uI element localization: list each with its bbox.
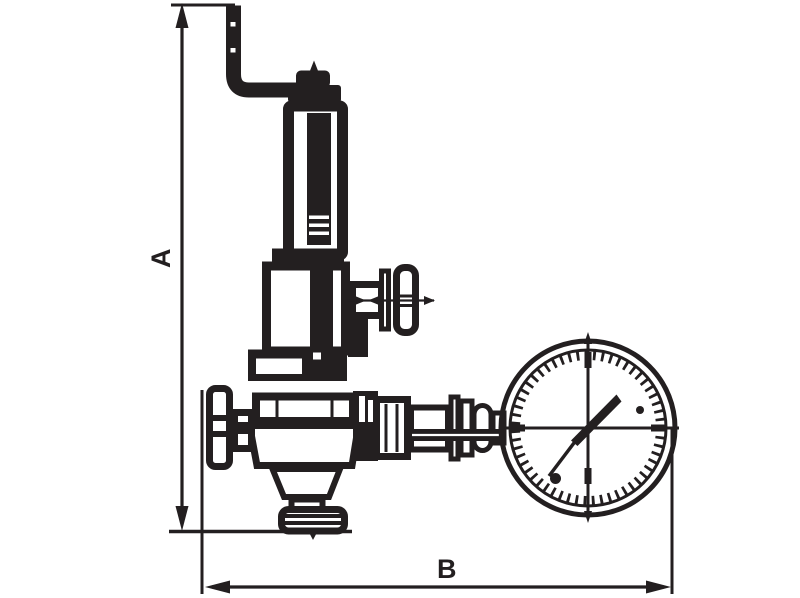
arrow-down [176, 506, 189, 531]
gauge-needle [571, 395, 622, 447]
valve-body [248, 350, 359, 541]
dimension-b-label: B [437, 554, 457, 584]
bonnet [267, 249, 346, 352]
dial-dot [636, 406, 644, 414]
adjusting-cap [288, 61, 341, 103]
dimension-a-label: A [146, 249, 176, 269]
spindle-lower [310, 263, 333, 351]
needle-counterweight [550, 473, 561, 484]
arrow-left [205, 581, 230, 594]
side-port-handle [347, 268, 435, 358]
inlet-flange [207, 389, 256, 467]
arrow-up [176, 3, 189, 28]
pressure-gauge [500, 332, 679, 523]
center-tip [310, 61, 319, 73]
spring-housing [289, 106, 343, 255]
arrow-right [646, 581, 671, 594]
drawing-canvas: A B [0, 0, 800, 598]
center-tip-bottom [308, 531, 318, 541]
outlet-pipe-elbow [231, 6, 298, 91]
valve-technical-drawing: A B [0, 0, 800, 598]
outlet-assembly [353, 391, 504, 461]
